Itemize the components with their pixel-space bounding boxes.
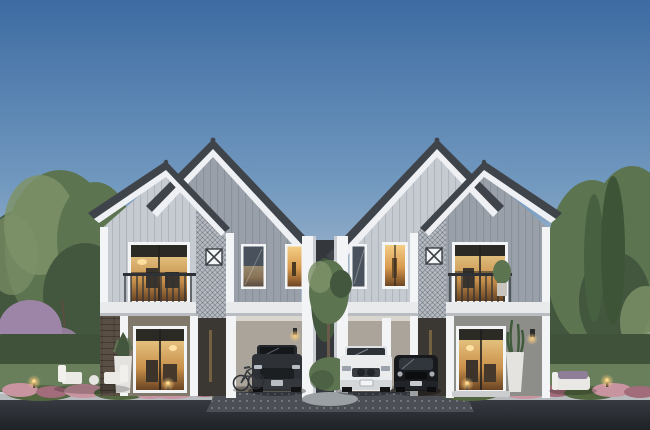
corner-trim-outer [542,316,550,398]
carport-ceiling [348,316,410,321]
garden-light [460,377,474,391]
ridge-finial [482,160,486,164]
ridge-finial [435,138,440,143]
conifer-tall [584,194,604,322]
window-upper-mid [241,244,266,289]
corner-trim-outer [542,227,550,304]
car-black [391,355,441,396]
carport-ceiling [236,316,302,321]
ridge-finial [164,160,168,164]
gable-ornament [426,248,442,264]
garden-light [600,374,614,388]
island-tree [330,270,352,298]
door-step [452,391,510,397]
garden-light [27,375,41,389]
scene-canvas [0,0,650,430]
suv-white [336,346,396,396]
island-tree [308,261,332,293]
window-upper-inner [285,244,304,289]
corner-trim-outer [100,227,108,304]
mesh-trim [410,233,418,304]
ridge-finial [211,138,216,143]
gable-ornament [206,249,222,265]
glass-door [133,326,187,393]
window-upper-inner [350,244,367,289]
slot-trim [446,316,454,398]
rendered-scene [0,0,650,430]
conifer-tall [601,176,625,324]
garden-light [161,377,175,391]
side-table [89,375,99,385]
slot-trim [190,316,198,396]
window-upper-mid [382,242,408,289]
island-bush [310,370,334,390]
mesh-trim [226,233,234,304]
